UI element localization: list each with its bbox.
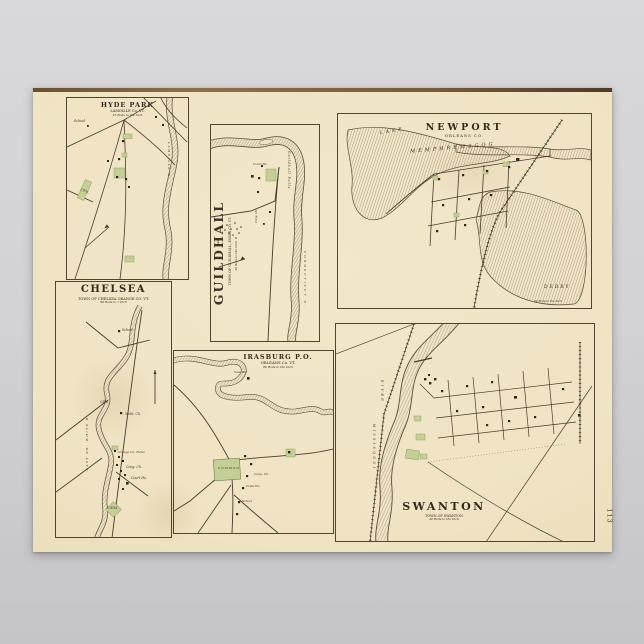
map-scale-note: 25 Rods to the Inch <box>67 114 188 118</box>
irasburg-map-art <box>174 351 333 533</box>
town-house-label: Town Ho. <box>246 485 260 488</box>
derby-label: DERBY <box>544 286 570 291</box>
map-panel-hyde-park: HYDE PARK LAMOILLE Co. VT. 25 Rods to th… <box>66 97 189 280</box>
map-title: GUILDHALL <box>213 201 226 305</box>
court-house-label: Court Ho. <box>253 163 268 166</box>
newport-title-block: NEWPORT ORLEANS CO. <box>338 122 591 139</box>
chelsea-title-block: CHELSEA TOWN OF CHELSEA ORANGE CO. VT. 6… <box>56 284 171 305</box>
congregational-church-label: Cong. Ch. <box>254 473 269 476</box>
methodist-church-label: Meth. Ch. <box>125 413 141 416</box>
backdrop: HYDE PARK LAMOILLE Co. VT. 25 Rods to th… <box>0 0 644 644</box>
river-label: EAST BR. WHITE R. <box>86 414 89 470</box>
hotel-label: Orange Co. Hotel <box>118 451 145 454</box>
green-lot <box>286 449 295 457</box>
saw-mill-label: Saw Mill <box>234 371 247 374</box>
map-scale-note: 40 Rods to the Inch <box>364 518 524 522</box>
irasburg-title-block: IRASBURG P.O. ORLEANS Co. VT. 80 Rods to… <box>226 353 330 370</box>
poster-top-edge <box>33 88 612 92</box>
lake-memphremagog <box>347 127 591 304</box>
school-label: School <box>74 120 85 123</box>
cemetery-upper-label: CEM. <box>100 401 109 404</box>
map-scale-note: 40 Rods to the Inch <box>235 241 238 271</box>
atlas-poster: HYDE PARK LAMOILLE Co. VT. 25 Rods to th… <box>33 88 612 552</box>
congregational-church-label: Cong. Ch. <box>126 466 142 469</box>
tree-cluster <box>224 222 242 239</box>
map-scale-note: 60 Rods to 1 Inch <box>56 301 171 305</box>
congregational-church-label: Cong. Ch. <box>255 209 258 223</box>
map-panel-newport: NEWPORT ORLEANS CO. LAKE MEMPHREMAGOG DE… <box>337 113 592 309</box>
court-house-label: Court Ho. <box>131 477 147 480</box>
map-subtitle: ORLEANS CO. <box>338 134 591 139</box>
map-panel-swanton: SWANTON TOWN OF SWANTON 40 Rods to the I… <box>335 323 595 542</box>
map-title: SWANTON <box>364 500 524 514</box>
page-number: 113 <box>606 508 614 523</box>
white-river-branch <box>97 306 140 537</box>
map-scale-note: 50 Rods to the Inch <box>534 300 562 303</box>
green-lots <box>405 416 427 460</box>
map-subtitle: TOWN OF GUILDHALL, ESSEX CO. VT. <box>229 217 232 285</box>
common-label: COMMON <box>218 467 240 470</box>
river-label-word1: RIVER <box>380 380 383 403</box>
river-label: LAMOILLE R. <box>167 142 170 180</box>
falls-label: Guildhall Falls <box>287 151 290 189</box>
court-house-lot <box>266 169 276 181</box>
map-title: HYDE PARK <box>67 101 188 109</box>
river-label: CONNECTICUT R. <box>303 251 306 308</box>
chelsea-map-art <box>56 282 171 537</box>
swanton-title-block: SWANTON TOWN OF SWANTON 40 Rods to the I… <box>364 500 524 522</box>
cemetery-lower-label: CEM. <box>107 507 119 511</box>
hyde-park-title-block: HYDE PARK LAMOILLE Co. VT. 25 Rods to th… <box>67 101 188 117</box>
map-panel-irasburg: IRASBURG P.O. ORLEANS Co. VT. 80 Rods to… <box>173 350 334 534</box>
map-title: CHELSEA <box>56 284 171 297</box>
map-panel-chelsea: CHELSEA TOWN OF CHELSEA ORANGE CO. VT. 6… <box>55 281 172 538</box>
river-label-word2: MISSISQUOI <box>372 424 375 470</box>
map-panel-guildhall: GUILDHALL TOWN OF GUILDHALL, ESSEX CO. V… <box>210 124 320 342</box>
compass-arrow <box>153 370 156 374</box>
school-label: School <box>242 500 252 503</box>
school-label: School <box>122 329 133 332</box>
guildhall-map-art <box>211 125 319 341</box>
